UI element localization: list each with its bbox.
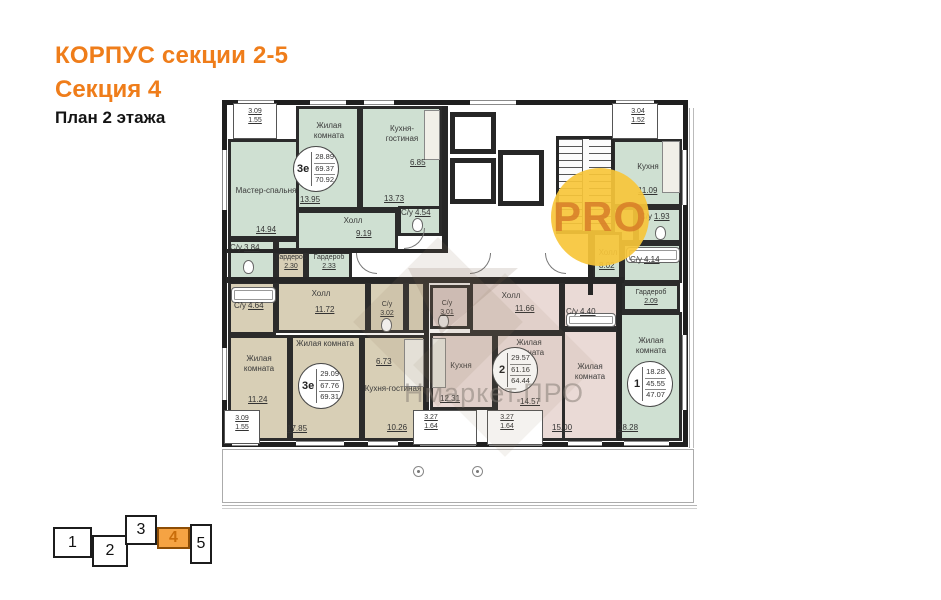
staircase [556, 136, 614, 234]
room-area: 14.94 [256, 225, 276, 234]
section-box-1[interactable]: 1 [53, 527, 92, 558]
unit-type: 3е [297, 163, 311, 175]
room-area: 10.26 [387, 423, 407, 432]
wall-hall-b-left [588, 230, 593, 295]
room-label: Мастер-спальня [232, 186, 300, 196]
wardrobe-label: Гардероб 2.30 [276, 253, 306, 272]
wardrobe-label: Гардероб 2.33 [310, 253, 348, 272]
room-area: 8.02 [599, 261, 615, 270]
unit-badge-b: 1 18.28 45.55 47.07 [627, 361, 673, 407]
section-box-3[interactable]: 3 [125, 515, 157, 545]
toilet-icon [655, 226, 666, 240]
room-area: 18.28 [618, 423, 638, 432]
unit-type: 1 [634, 378, 642, 390]
unit-areas: 18.28 45.55 47.07 [642, 367, 666, 401]
bathroom-label: С/у 3.01 [430, 299, 464, 318]
room-label: Холл [595, 248, 621, 258]
room-label: Жилая комната [232, 354, 286, 373]
floor-plan-page: { "header": { "building": "КОРПУС секции… [0, 0, 941, 600]
window [310, 100, 346, 105]
window [682, 335, 687, 410]
balcony-label: 3.04 1.52 [620, 107, 656, 126]
room-area: 11.09 [638, 186, 657, 195]
facade-line [689, 108, 690, 448]
terrace-edge-line [222, 508, 697, 509]
loggia-label: 3.27 1.64 [492, 413, 522, 432]
window [682, 150, 687, 205]
section-box-2[interactable]: 2 [92, 535, 128, 567]
room-area: 6.73 [376, 357, 392, 366]
unit-type: 3е [302, 380, 316, 392]
window [296, 441, 344, 446]
wardrobe-label: Гардероб 2.09 [628, 288, 674, 307]
window [624, 441, 669, 446]
unit-badge-d: 2 29.57 61.16 64.44 [492, 347, 538, 393]
elevator-shaft-3 [498, 150, 544, 206]
wall-core-left [442, 106, 448, 253]
room-label: Кухня [628, 162, 668, 172]
room-area: 17.85 [287, 424, 307, 433]
bathroom-label: С/у 3.02 [372, 300, 402, 319]
bathroom-label: С/у4.40 [566, 307, 596, 316]
room-label: Жилая комната [301, 121, 357, 140]
section-box-5[interactable]: 5 [190, 524, 212, 564]
terrace-drain-icon [413, 466, 424, 477]
toilet-icon [412, 218, 423, 232]
unit-areas: 28.89 69.37 70.92 [311, 152, 335, 186]
window [364, 100, 394, 105]
room-label: Кухня [436, 361, 486, 371]
window [368, 441, 398, 446]
page-title: КОРПУС секции 2-5 [55, 42, 288, 70]
window [568, 441, 602, 446]
bathroom-label: С/у1.93 [640, 212, 670, 221]
window [222, 150, 227, 210]
window [470, 100, 516, 105]
room-area: 13.95 [300, 195, 320, 204]
facade-line [693, 108, 694, 448]
section-subtitle: Секция 4 [55, 76, 161, 104]
floor-subtitle: План 2 этажа [55, 108, 165, 128]
unit-areas: 29.57 61.16 64.44 [507, 353, 531, 387]
unit-areas: 29.09 67.76 69.31 [316, 369, 340, 403]
room-niche-c [406, 281, 426, 333]
room-label: Кухня-гостиная [374, 124, 430, 143]
bathroom-label: С/у4.64 [234, 301, 264, 310]
room-label: Жилая комната [296, 339, 354, 349]
bathroom-label: С/у4.14 [630, 255, 660, 264]
kitchen-counter [404, 339, 424, 387]
room-area: 12.31 [440, 394, 460, 403]
wall-d-b-divider [617, 283, 622, 441]
room-label: Холл [496, 291, 526, 301]
room-area: 11.24 [248, 395, 267, 404]
room-area: 13.73 [384, 194, 404, 203]
unit-badge-a: 3е 28.89 69.37 70.92 [293, 146, 339, 192]
balcony-label: 3.09 1.55 [237, 107, 273, 126]
room-area: 11.72 [315, 305, 334, 314]
room-label: Жилая комната [564, 362, 616, 381]
room-area: 9.19 [356, 229, 372, 238]
room-area: 11.66 [515, 304, 534, 313]
stair-landing [582, 139, 589, 231]
room-label: Кухня-гостиная [364, 384, 422, 394]
elevator-shaft-1 [450, 112, 496, 154]
terrace-drain-icon [472, 466, 483, 477]
balcony-label: 3.09 1.55 [227, 414, 257, 433]
room-area: 6.85 [410, 158, 426, 167]
terrace [222, 449, 694, 503]
terrace-edge-line [222, 505, 697, 506]
window [222, 348, 227, 400]
section-box-4-active[interactable]: 4 [157, 527, 190, 549]
room-label: Холл [306, 289, 336, 299]
unit-type: 2 [499, 364, 507, 376]
room-label: Холл [338, 216, 368, 226]
elevator-shaft-2 [450, 158, 496, 204]
room-area: 14.57 [520, 397, 540, 406]
bathroom-label: С/у3.84 [230, 243, 260, 252]
loggia-label: 3.27 1.64 [416, 413, 446, 432]
room-area: 15.00 [552, 423, 572, 432]
unit-badge-c: 3е 29.09 67.76 69.31 [298, 363, 344, 409]
bathroom-label: С/у4.54 [401, 208, 431, 217]
toilet-icon [381, 318, 392, 332]
room-label: Жилая комната [626, 336, 676, 355]
toilet-icon [243, 260, 254, 274]
